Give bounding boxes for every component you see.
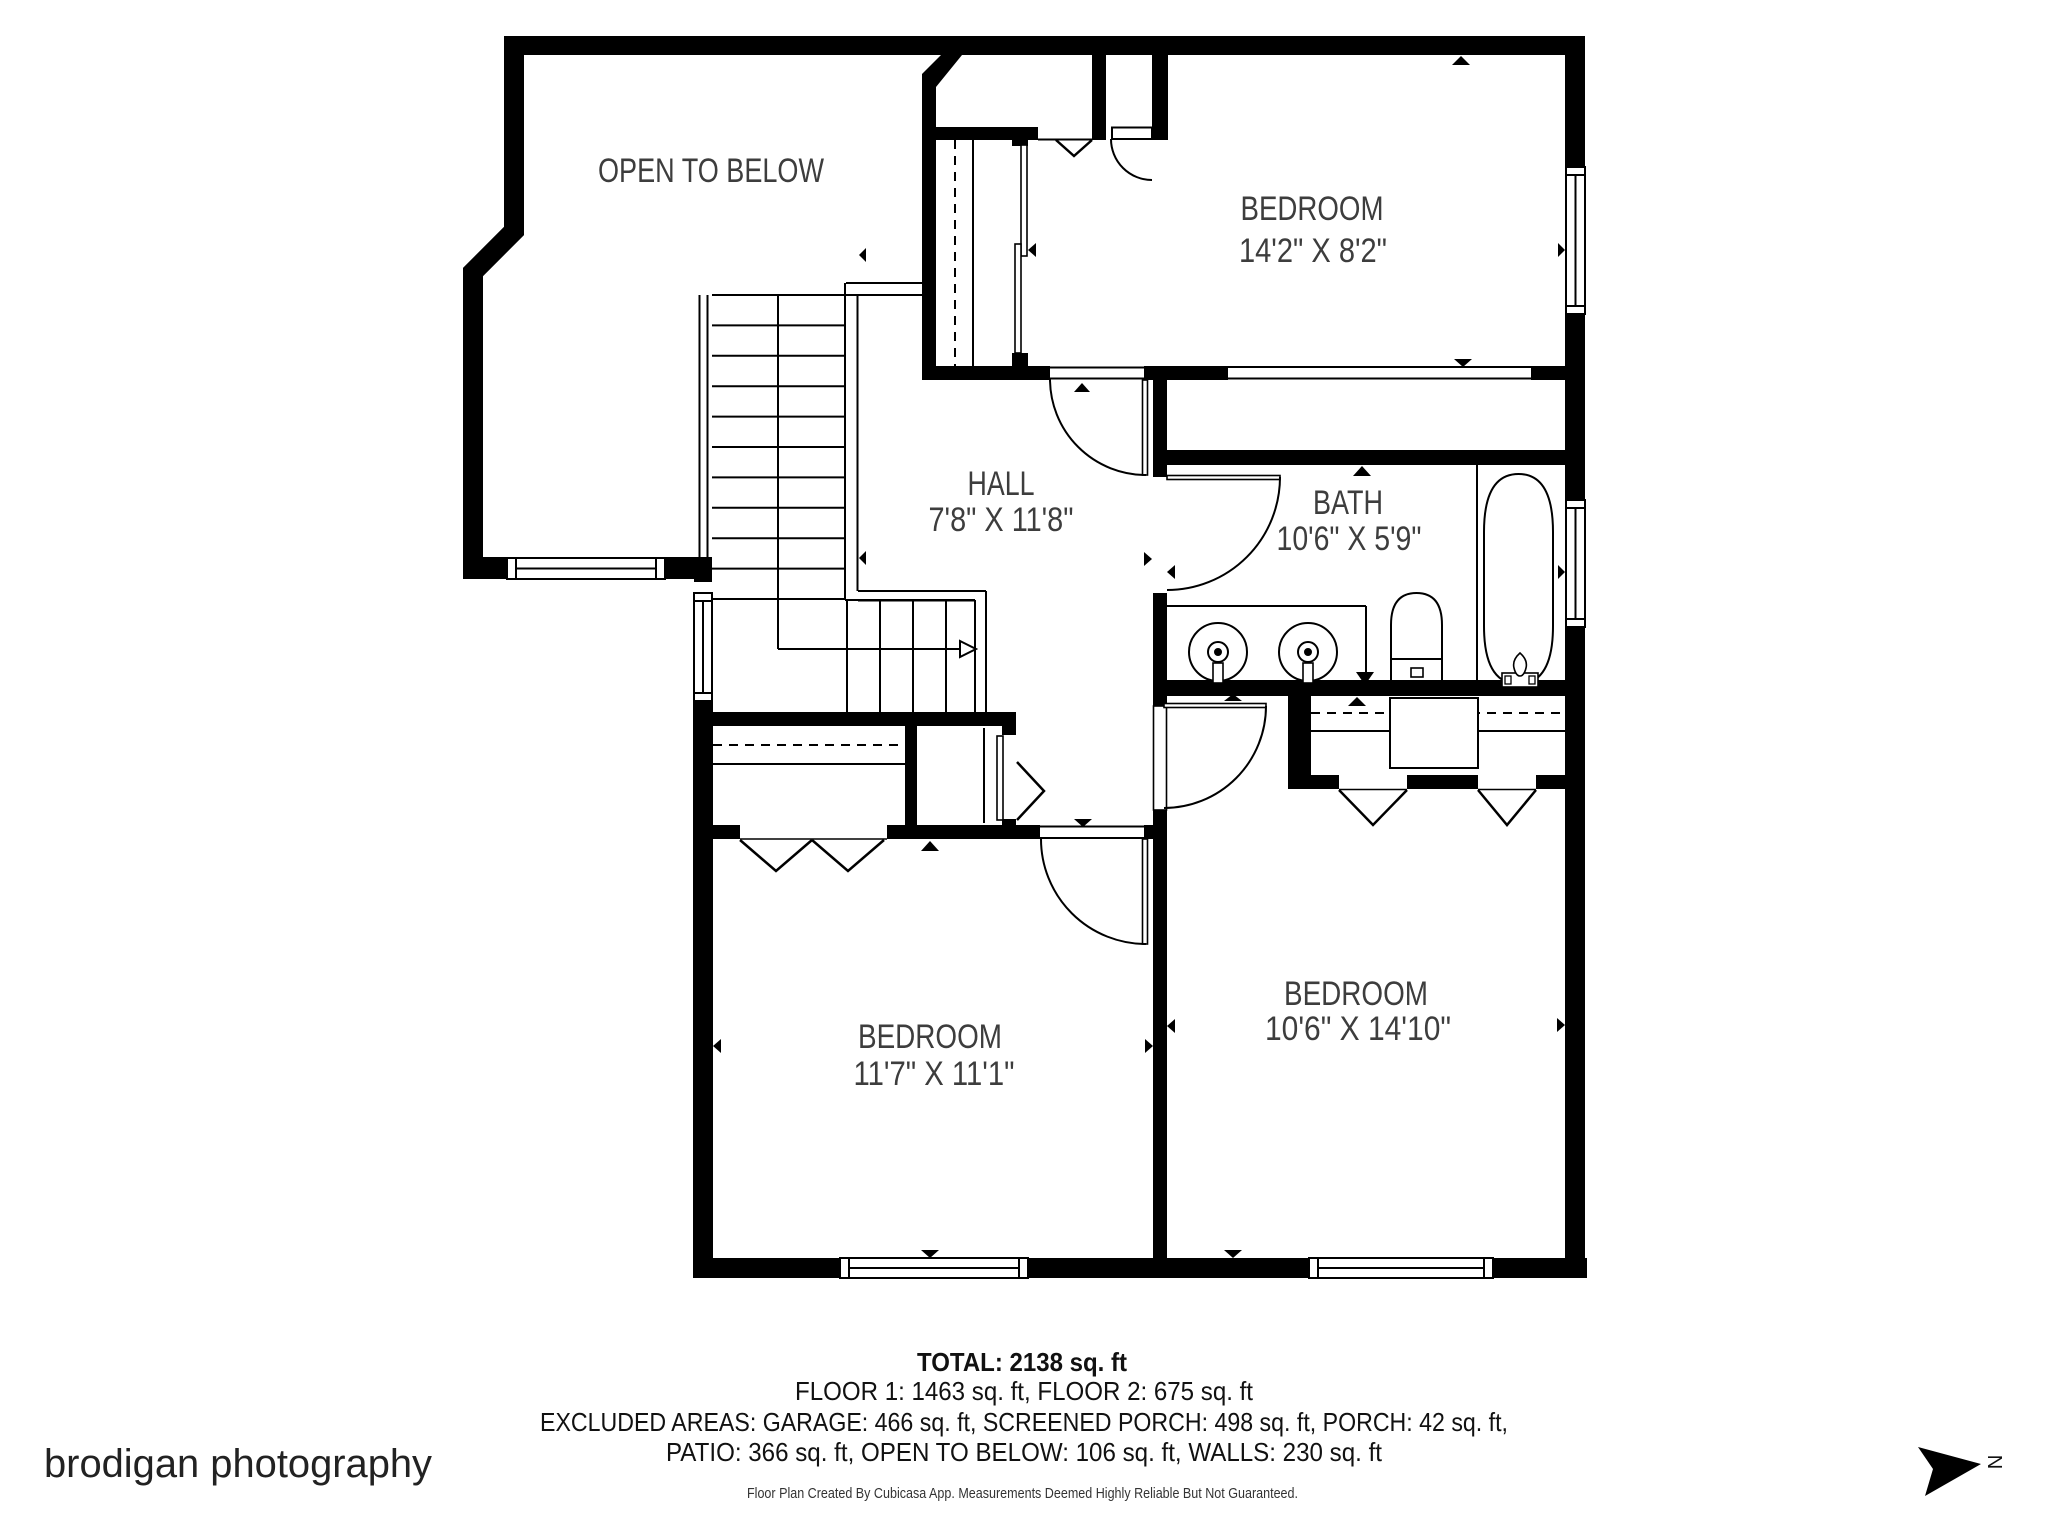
svg-text:7'8" X 11'8": 7'8" X 11'8": [929, 501, 1074, 539]
svg-text:PATIO: 366 sq. ft, OPEN TO BEL: PATIO: 366 sq. ft, OPEN TO BELOW: 106 sq…: [666, 1437, 1383, 1467]
svg-text:OPEN TO BELOW: OPEN TO BELOW: [598, 152, 824, 190]
svg-text:EXCLUDED AREAS: GARAGE: 466 sq: EXCLUDED AREAS: GARAGE: 466 sq. ft, SCRE…: [540, 1407, 1508, 1437]
svg-text:14'2" X 8'2": 14'2" X 8'2": [1239, 232, 1387, 270]
svg-text:BATH: BATH: [1313, 484, 1383, 522]
svg-text:BEDROOM: BEDROOM: [858, 1018, 1002, 1056]
svg-text:Floor Plan Created By Cubicasa: Floor Plan Created By Cubicasa App. Meas…: [747, 1486, 1298, 1502]
svg-text:brodigan photography: brodigan photography: [44, 1442, 432, 1486]
svg-text:N: N: [1983, 1455, 2005, 1469]
svg-text:HALL: HALL: [968, 465, 1035, 503]
svg-text:TOTAL: 2138 sq. ft: TOTAL: 2138 sq. ft: [917, 1347, 1127, 1377]
svg-text:11'7" X 11'1": 11'7" X 11'1": [854, 1055, 1015, 1093]
svg-text:10'6" X 14'10": 10'6" X 14'10": [1265, 1010, 1451, 1048]
svg-text:FLOOR 1: 1463 sq. ft, FLOOR 2:: FLOOR 1: 1463 sq. ft, FLOOR 2: 675 sq. f…: [795, 1376, 1254, 1406]
svg-text:BEDROOM: BEDROOM: [1284, 975, 1428, 1013]
svg-text:BEDROOM: BEDROOM: [1241, 190, 1384, 228]
svg-text:10'6" X 5'9": 10'6" X 5'9": [1277, 520, 1422, 558]
